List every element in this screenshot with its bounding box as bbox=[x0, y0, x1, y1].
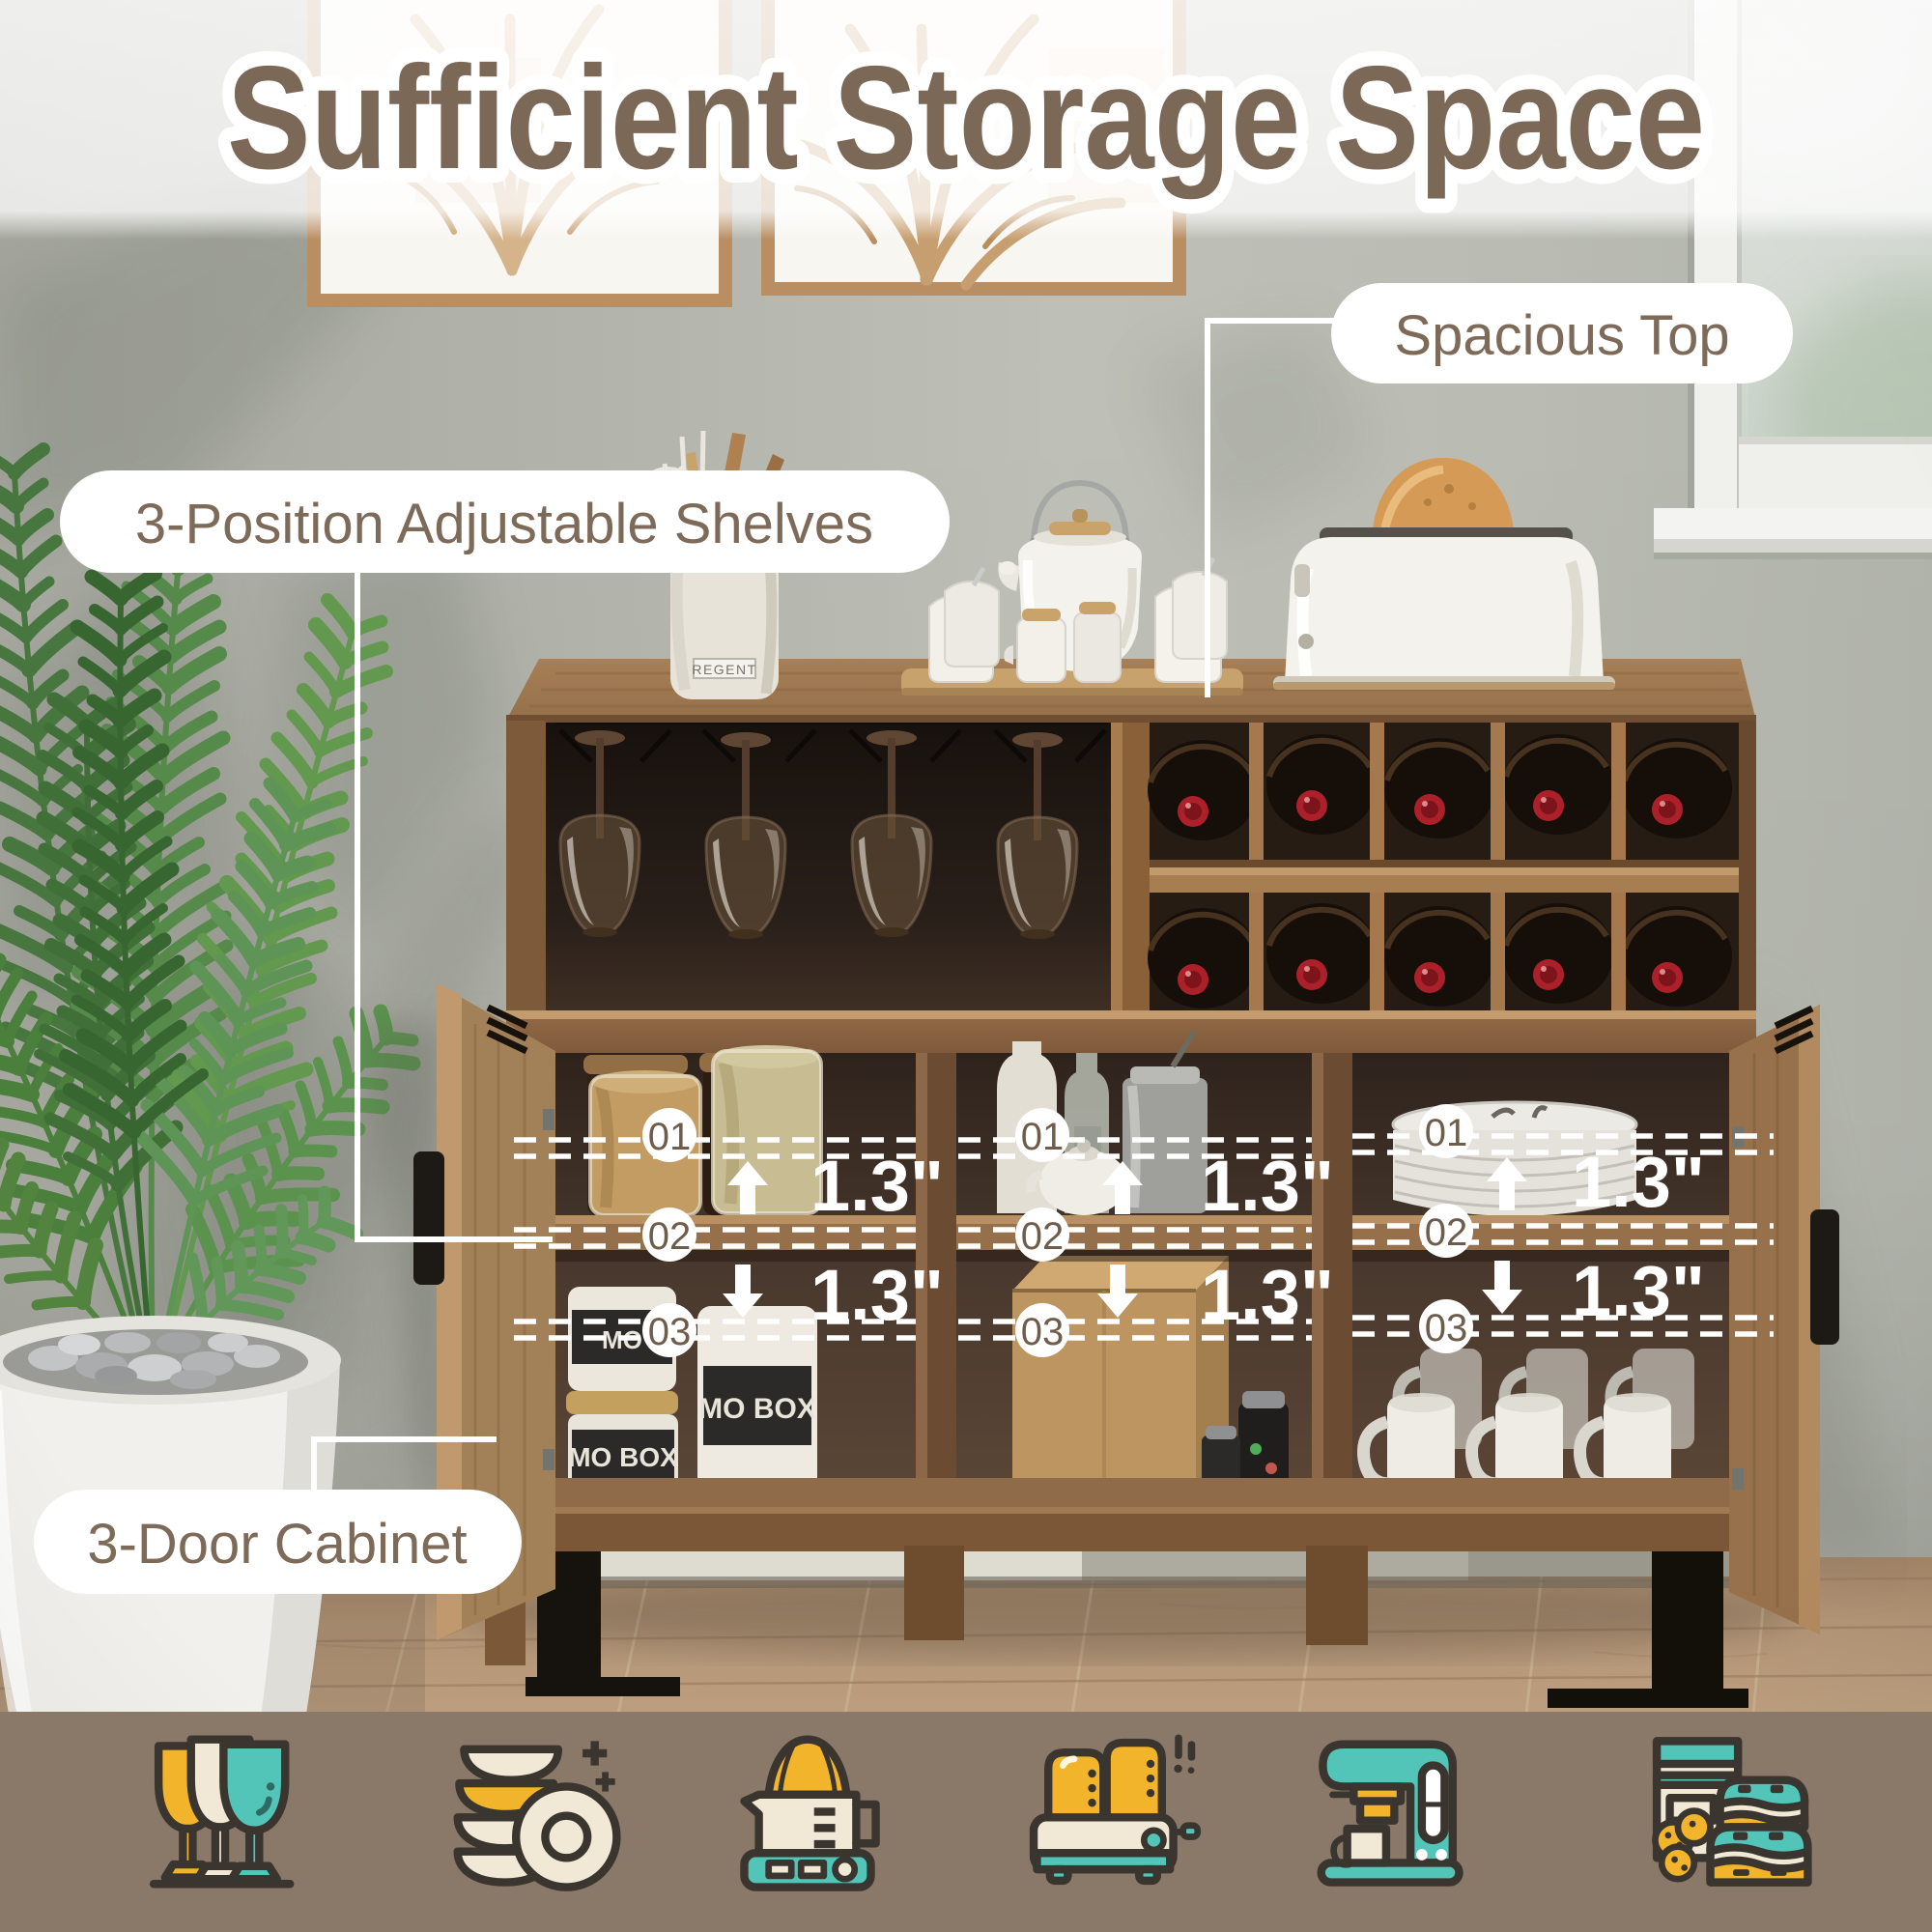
svg-text:Sufficient Storage Space: Sufficient Storage Space bbox=[227, 36, 1705, 200]
svg-text:3-Door Cabinet: 3-Door Cabinet bbox=[87, 1513, 467, 1576]
svg-text:3-Position Adjustable Shelves: 3-Position Adjustable Shelves bbox=[135, 493, 873, 555]
svg-text:Spacious Top: Spacious Top bbox=[1394, 304, 1729, 367]
